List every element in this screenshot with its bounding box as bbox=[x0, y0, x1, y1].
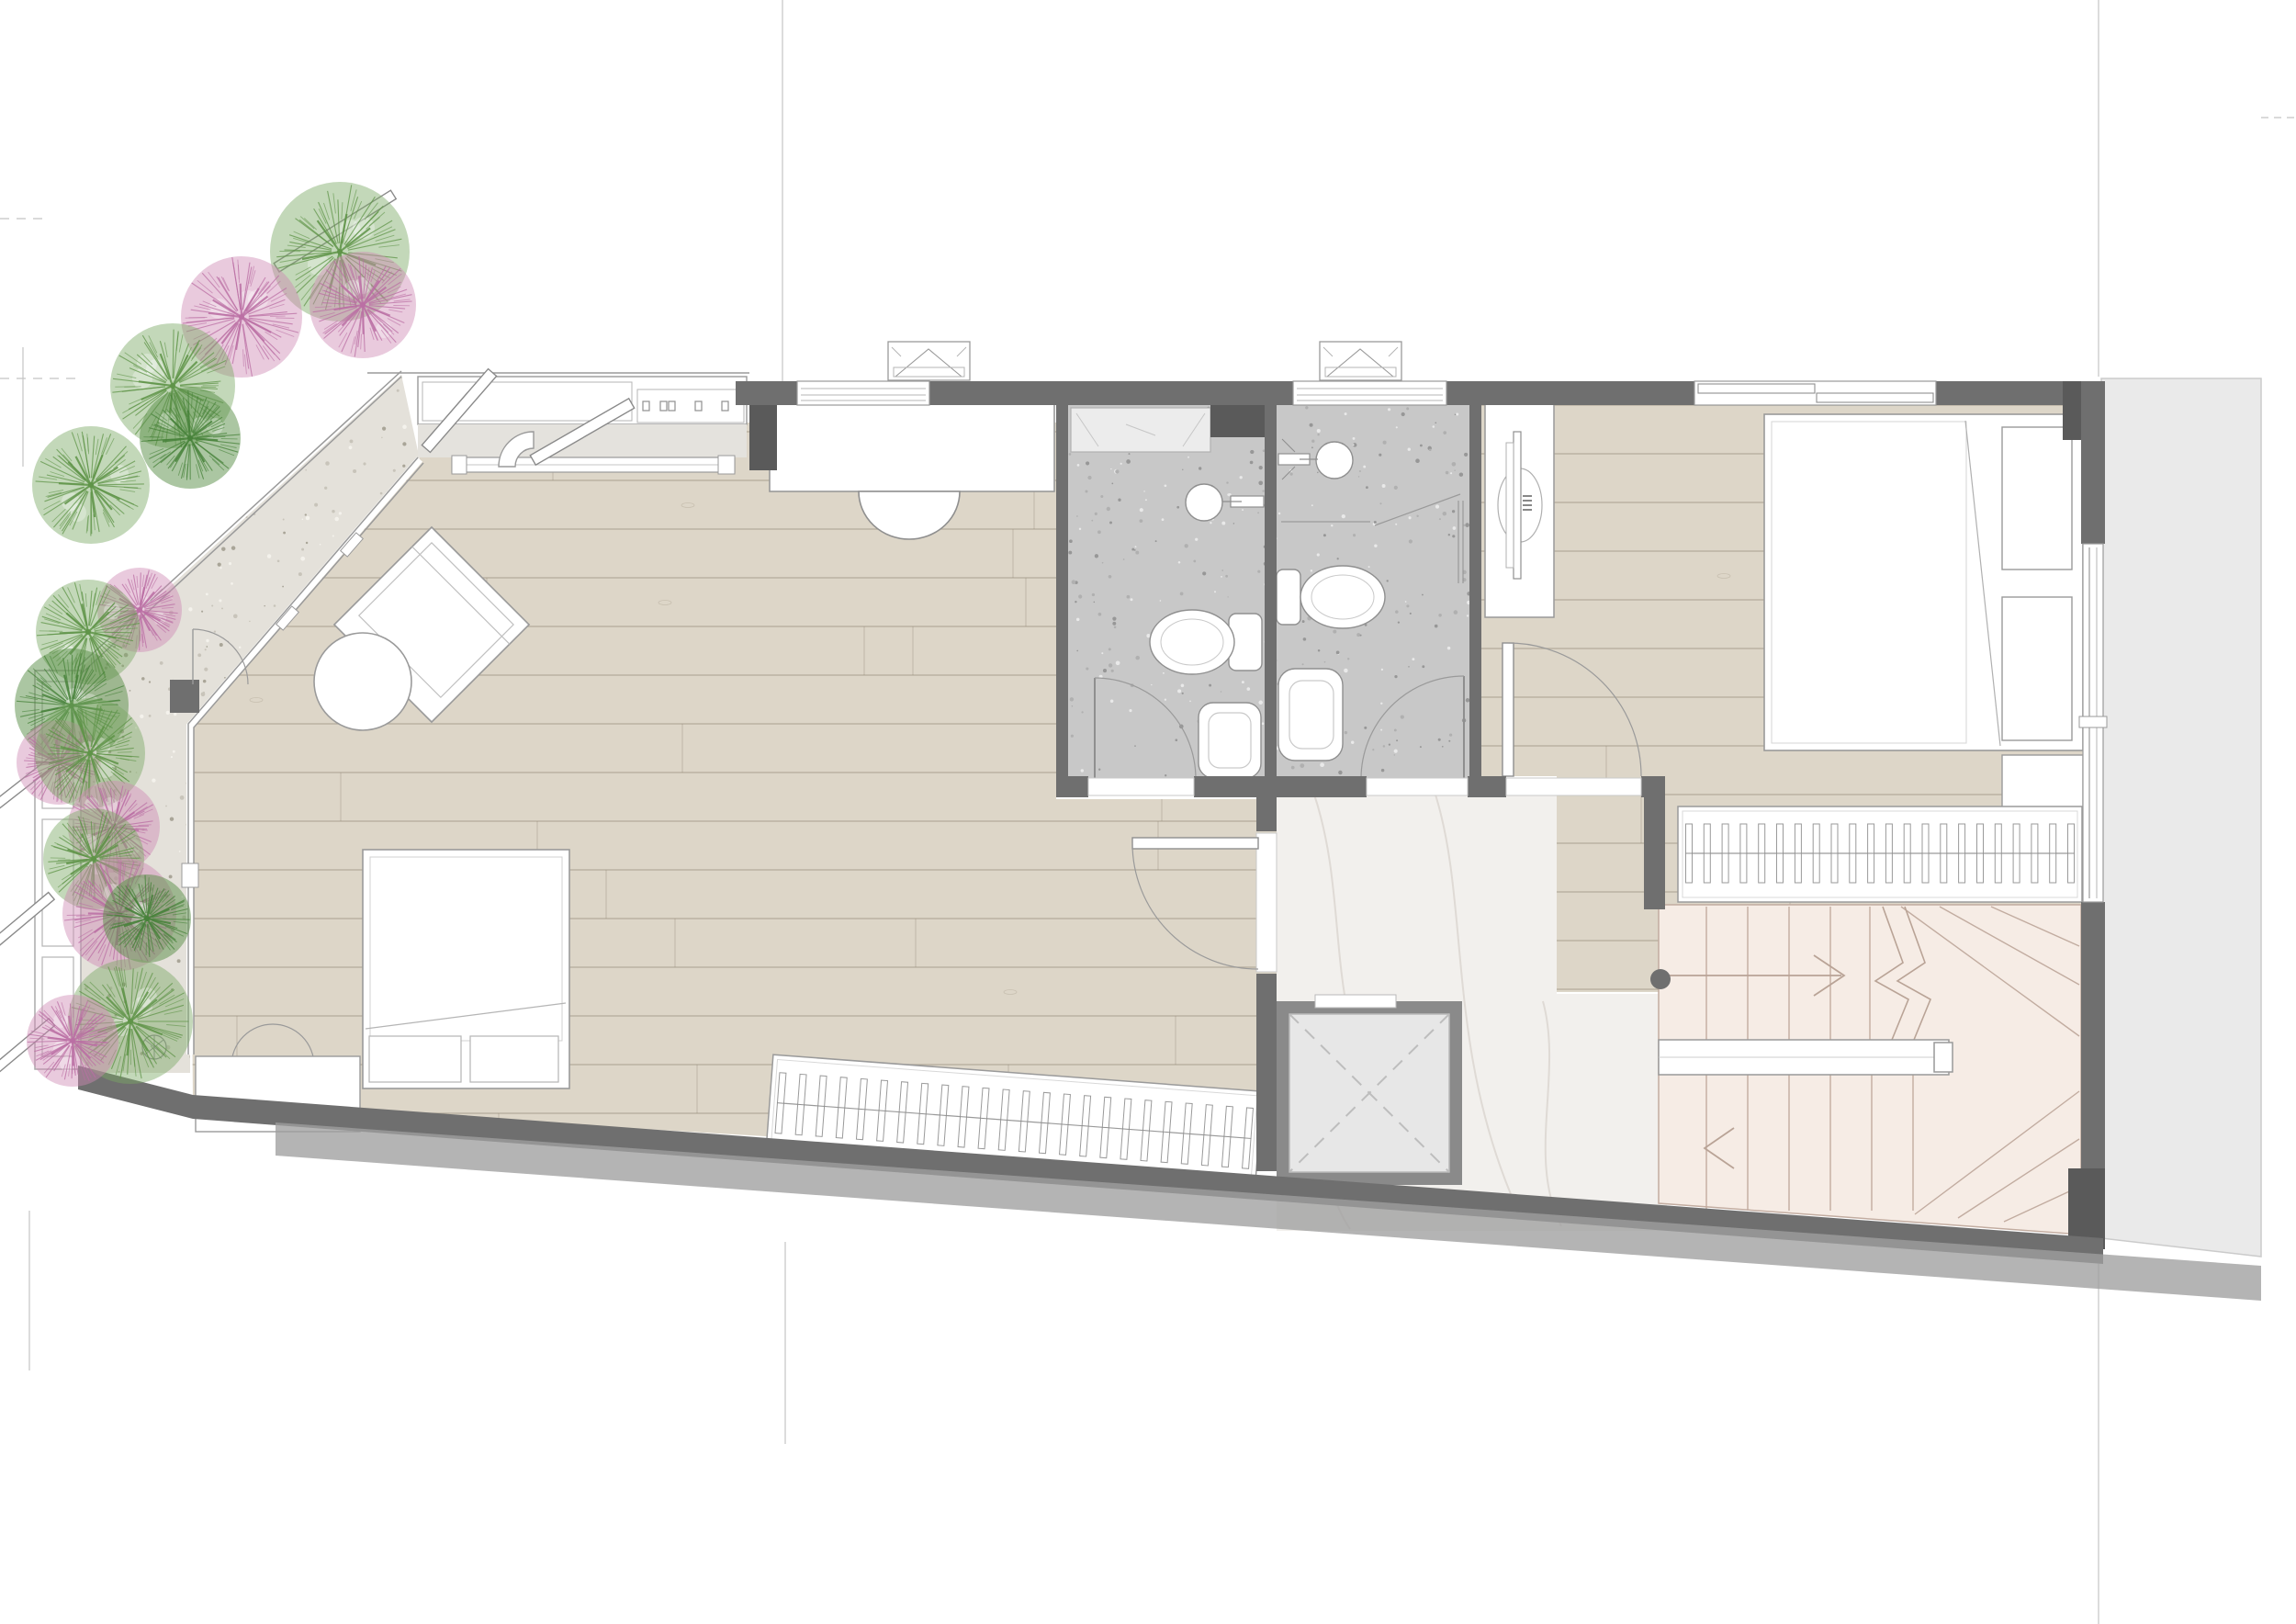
speckle-dot bbox=[298, 405, 302, 409]
tv-panel-icon bbox=[1514, 432, 1521, 579]
speckle-dot bbox=[1464, 524, 1466, 526]
hallway-west-wall bbox=[1256, 797, 1277, 831]
speckle-dot bbox=[186, 491, 189, 494]
bathroom2-east-wall bbox=[1469, 405, 1481, 778]
speckle-dot bbox=[1076, 515, 1078, 517]
speckle-dot bbox=[244, 379, 248, 383]
speckle-dot bbox=[1420, 445, 1423, 447]
speckle-dot bbox=[205, 532, 208, 536]
speckle-dot bbox=[334, 517, 338, 521]
side-table bbox=[314, 633, 411, 730]
glass-mullion bbox=[182, 863, 198, 887]
tree-frond bbox=[91, 492, 92, 535]
hanger-hook bbox=[1020, 1122, 1028, 1122]
speckle-dot bbox=[229, 562, 231, 565]
speckle-dot bbox=[196, 498, 197, 500]
speckle-dot bbox=[235, 385, 239, 389]
hallway-west-wall bbox=[1256, 974, 1277, 1171]
speckle-dot bbox=[402, 442, 406, 445]
hanger-hook bbox=[797, 1104, 805, 1105]
tree-pink-icon bbox=[27, 995, 118, 1087]
speckle-dot bbox=[180, 795, 185, 800]
speckle-dot bbox=[101, 405, 103, 407]
speckle-dot bbox=[1303, 637, 1307, 641]
speckle-dot bbox=[324, 487, 327, 490]
speckle-dot bbox=[1092, 593, 1095, 596]
neighbor-building bbox=[2101, 378, 2261, 1257]
speckle-dot bbox=[1363, 466, 1366, 468]
speckle-dot bbox=[152, 562, 155, 565]
hanger-hook bbox=[879, 1111, 886, 1111]
speckle-dot bbox=[171, 756, 173, 758]
speckle-dot bbox=[1210, 522, 1211, 524]
speckle-dot bbox=[1262, 722, 1265, 725]
speckle-dot bbox=[1446, 471, 1449, 475]
speckle-dot bbox=[1189, 701, 1191, 703]
speckle-dot bbox=[1442, 746, 1444, 748]
speckle-dot bbox=[1388, 408, 1390, 411]
speckle-dot bbox=[1109, 648, 1111, 650]
speckle-dot bbox=[1422, 594, 1424, 596]
speckle-dot bbox=[1382, 484, 1386, 488]
speckle-dot bbox=[1344, 669, 1348, 673]
speckle-dot bbox=[1302, 620, 1305, 623]
speckle-dot bbox=[165, 806, 167, 807]
stair-west-wall bbox=[1644, 797, 1665, 909]
speckle-dot bbox=[242, 400, 246, 404]
speckle-dot bbox=[1109, 575, 1112, 579]
speckle-dot bbox=[231, 582, 233, 585]
speckle-dot bbox=[1097, 530, 1101, 534]
east-wall bbox=[2081, 381, 2105, 544]
speckle-dot bbox=[1422, 665, 1424, 668]
hanger-hook bbox=[858, 1109, 865, 1110]
speckle-dot bbox=[282, 475, 285, 478]
speckle-dot bbox=[402, 424, 407, 429]
speckle-dot bbox=[173, 750, 175, 753]
speckle-dot bbox=[203, 680, 207, 683]
speckle-dot bbox=[1381, 669, 1383, 671]
speckle-dot bbox=[1429, 448, 1432, 451]
speckle-dot bbox=[1331, 524, 1333, 526]
speckle-dot bbox=[1387, 580, 1389, 581]
speckle-dot bbox=[1085, 490, 1087, 492]
speckle-dot bbox=[1257, 570, 1260, 573]
speckle-dot bbox=[1317, 472, 1318, 473]
speckle-dot bbox=[1347, 658, 1349, 660]
speckle-dot bbox=[1345, 731, 1347, 734]
speckle-dot bbox=[1193, 559, 1196, 562]
speckle-dot bbox=[1247, 687, 1251, 691]
speckle-dot bbox=[1140, 519, 1143, 523]
speckle-dot bbox=[1448, 534, 1450, 536]
speckle-dot bbox=[1454, 610, 1458, 615]
speckle-dot bbox=[1466, 698, 1470, 703]
toilet bbox=[1150, 610, 1262, 674]
hanger-hook bbox=[919, 1113, 927, 1114]
shower-niche-wall bbox=[1210, 405, 1265, 437]
speckle-dot bbox=[188, 607, 192, 611]
speckle-dot bbox=[1300, 763, 1304, 768]
speckle-dot bbox=[1311, 570, 1312, 571]
speckle-dot bbox=[1395, 524, 1397, 525]
speckle-dot bbox=[206, 593, 208, 596]
speckle-dot bbox=[90, 386, 92, 388]
window-bathroom2 bbox=[1293, 381, 1446, 405]
speckle-dot bbox=[1398, 621, 1400, 623]
speckle-dot bbox=[129, 690, 131, 692]
speckle-dot bbox=[289, 445, 294, 449]
canopy-highlight bbox=[132, 368, 152, 389]
speckle-dot bbox=[1242, 509, 1244, 511]
speckle-dot bbox=[132, 556, 135, 558]
speckle-dot bbox=[211, 604, 213, 606]
speckle-dot bbox=[301, 548, 304, 551]
speckle-dot bbox=[1116, 660, 1120, 665]
speckle-dot bbox=[1394, 750, 1398, 753]
speckle-dot bbox=[197, 653, 201, 657]
speckle-dot bbox=[167, 547, 172, 551]
speckle-dot bbox=[1401, 412, 1405, 416]
speckle-dot bbox=[160, 661, 163, 665]
speckle-dot bbox=[402, 465, 405, 468]
speckle-dot bbox=[1178, 561, 1181, 564]
speckle-dot bbox=[283, 532, 286, 535]
speckle-dot bbox=[270, 414, 271, 415]
speckle-dot bbox=[1151, 684, 1152, 685]
hanger-hook bbox=[940, 1115, 947, 1116]
hanger-hook bbox=[1183, 1133, 1190, 1134]
speckle-dot bbox=[173, 517, 176, 521]
speckle-dot bbox=[283, 519, 285, 521]
door-threshold bbox=[1088, 778, 1194, 795]
wood-knot bbox=[472, 1185, 485, 1190]
speckle-dot bbox=[235, 398, 237, 400]
speckle-dot bbox=[1372, 749, 1374, 750]
speckle-dot bbox=[1176, 506, 1179, 509]
speckle-dot bbox=[249, 621, 251, 623]
speckle-dot bbox=[298, 425, 300, 427]
speckle-dot bbox=[249, 475, 252, 478]
speckle-dot bbox=[1209, 684, 1211, 687]
speckle-dot bbox=[156, 504, 159, 507]
speckle-dot bbox=[1452, 510, 1455, 513]
speckle-dot bbox=[1069, 539, 1073, 543]
speckle-dot bbox=[1107, 507, 1110, 511]
speckle-dot bbox=[1453, 526, 1457, 530]
tree-trunk-dot bbox=[170, 383, 175, 389]
nightstand bbox=[2002, 427, 2072, 570]
speckle-dot bbox=[1410, 613, 1412, 615]
wardrobe-right bbox=[1678, 806, 2082, 902]
speckle-dot bbox=[1409, 539, 1412, 543]
speckle-dot bbox=[306, 542, 308, 544]
speckle-dot bbox=[1145, 499, 1147, 501]
speckle-dot bbox=[1342, 514, 1345, 518]
speckle-dot bbox=[1450, 472, 1452, 474]
speckle-dot bbox=[1443, 431, 1446, 434]
hanger-hook bbox=[817, 1106, 825, 1107]
speckle-dot bbox=[224, 508, 228, 512]
speckle-dot bbox=[363, 462, 366, 465]
speckle-dot bbox=[297, 412, 300, 415]
speckle-dot bbox=[1336, 651, 1340, 655]
speckle-dot bbox=[1467, 615, 1469, 616]
speckle-dot bbox=[1094, 602, 1096, 603]
speckle-dot bbox=[1318, 649, 1321, 652]
stair-handrail-post bbox=[1934, 1043, 1953, 1072]
speckle-dot bbox=[201, 611, 203, 613]
speckle-dot bbox=[1258, 480, 1263, 485]
speckle-dot bbox=[1383, 441, 1387, 445]
speckle-dot bbox=[314, 503, 318, 507]
speckle-dot bbox=[1227, 596, 1228, 597]
speckle-dot bbox=[1290, 473, 1293, 476]
speckle-dot bbox=[1071, 735, 1074, 738]
speckle-dot bbox=[1454, 469, 1456, 471]
speckle-dot bbox=[1394, 486, 1398, 490]
speckle-dot bbox=[152, 778, 155, 782]
speckle-dot bbox=[1311, 446, 1313, 448]
elevator bbox=[1277, 995, 1462, 1185]
speckle-dot bbox=[170, 817, 174, 820]
hanger-hook bbox=[1122, 1129, 1130, 1130]
slider-cap bbox=[452, 456, 467, 474]
tree-green2-icon bbox=[140, 388, 241, 489]
bidet bbox=[1278, 669, 1343, 761]
speckle-dot bbox=[1118, 499, 1120, 502]
door-threshold bbox=[1506, 778, 1641, 795]
speckle-dot bbox=[149, 539, 151, 541]
speckle-dot bbox=[1165, 484, 1167, 487]
speckle-dot bbox=[1353, 437, 1356, 440]
speckle-dot bbox=[302, 518, 304, 520]
speckle-dot bbox=[1111, 483, 1113, 485]
tree-frond bbox=[67, 915, 85, 916]
speckle-dot bbox=[1180, 592, 1184, 596]
south-wall bbox=[1056, 776, 1088, 797]
speckle-dot bbox=[393, 469, 396, 472]
speckle-dot bbox=[335, 382, 339, 386]
speckle-dot bbox=[1447, 647, 1450, 649]
speckle-dot bbox=[1439, 518, 1441, 520]
speckle-dot bbox=[173, 572, 176, 576]
speckle-dot bbox=[1086, 461, 1089, 465]
top-wall bbox=[1446, 381, 1694, 405]
speckle-dot bbox=[224, 677, 226, 679]
speckle-dot bbox=[1311, 440, 1314, 443]
speckle-dot bbox=[214, 630, 216, 632]
speckle-dot bbox=[1302, 663, 1304, 665]
speckle-dot bbox=[300, 557, 305, 561]
door-threshold bbox=[1367, 778, 1468, 795]
bidet bbox=[1199, 703, 1261, 778]
speckle-dot bbox=[1126, 459, 1131, 464]
speckle-dot bbox=[1452, 462, 1457, 467]
vent-box-icon bbox=[888, 342, 970, 380]
speckle-dot bbox=[339, 512, 342, 514]
speckle-dot bbox=[1412, 658, 1414, 660]
floor-plan-page bbox=[0, 0, 2296, 1624]
speckle-dot bbox=[1438, 739, 1441, 741]
speckle-dot bbox=[1291, 766, 1295, 770]
vanity-desk bbox=[1485, 393, 1554, 617]
speckle-dot bbox=[1408, 448, 1411, 451]
speckle-dot bbox=[1396, 739, 1398, 741]
speckle-dot bbox=[1311, 504, 1313, 506]
desk bbox=[770, 397, 1054, 491]
tree-frond bbox=[150, 437, 163, 438]
speckle-dot bbox=[177, 959, 181, 963]
tree-trunk-dot bbox=[91, 856, 96, 862]
speckle-dot bbox=[1380, 703, 1382, 705]
tree-frond bbox=[201, 387, 216, 388]
speckle-dot bbox=[255, 410, 257, 412]
speckle-dot bbox=[1368, 566, 1370, 568]
speckle-dot bbox=[1195, 538, 1198, 541]
speckle-dot bbox=[1187, 457, 1189, 458]
speckle-dot bbox=[1317, 553, 1320, 556]
speckle-dot bbox=[1465, 523, 1469, 527]
speckle-dot bbox=[274, 604, 276, 607]
speckle-dot bbox=[149, 681, 151, 682]
speckle-dot bbox=[1070, 697, 1074, 701]
speckle-dot bbox=[1317, 429, 1321, 433]
speckle-dot bbox=[253, 458, 256, 462]
speckle-dot bbox=[1401, 716, 1404, 719]
speckle-dot bbox=[1415, 458, 1420, 463]
slider-cap bbox=[718, 456, 735, 474]
hanger-hook bbox=[1082, 1126, 1089, 1127]
speckle-dot bbox=[1081, 769, 1084, 772]
speckle-dot bbox=[1409, 516, 1412, 519]
tree-green2-icon bbox=[103, 874, 191, 963]
speckle-dot bbox=[1181, 684, 1185, 688]
speckle-dot bbox=[380, 492, 383, 495]
speckle-dot bbox=[1069, 453, 1072, 456]
speckle-dot bbox=[305, 469, 307, 471]
speckle-dot bbox=[1435, 422, 1436, 423]
speckle-dot bbox=[1129, 709, 1131, 712]
speckle-dot bbox=[233, 614, 238, 618]
speckle-dot bbox=[332, 535, 334, 536]
speckle-dot bbox=[397, 389, 400, 392]
tree-frond bbox=[276, 318, 294, 319]
speckle-dot bbox=[1240, 476, 1243, 479]
hanger-hook bbox=[1223, 1136, 1231, 1137]
speckle-dot bbox=[1379, 454, 1381, 457]
speckle-dot bbox=[381, 437, 382, 438]
speckle-dot bbox=[1202, 571, 1206, 575]
speckle-dot bbox=[1087, 476, 1091, 479]
speckle-dot bbox=[221, 607, 223, 609]
speckle-dot bbox=[1131, 548, 1134, 551]
speckle-dot bbox=[1078, 594, 1082, 598]
speckle-dot bbox=[1165, 699, 1166, 701]
speckle-dot bbox=[350, 439, 354, 443]
speckle-dot bbox=[1353, 534, 1356, 536]
speckle-dot bbox=[1214, 591, 1216, 592]
speckle-dot bbox=[1123, 558, 1125, 560]
speckle-dot bbox=[1278, 513, 1280, 514]
speckle-dot bbox=[267, 554, 271, 558]
speckle-dot bbox=[305, 513, 307, 515]
speckle-dot bbox=[1182, 693, 1184, 694]
speckle-dot bbox=[179, 851, 181, 852]
speckle-dot bbox=[1221, 522, 1225, 525]
speckle-dot bbox=[1112, 616, 1116, 620]
speckle-dot bbox=[1075, 601, 1076, 603]
speckle-dot bbox=[277, 559, 280, 562]
speckle-dot bbox=[1257, 512, 1259, 513]
speckle-dot bbox=[1366, 486, 1368, 489]
speckle-dot bbox=[298, 572, 302, 576]
speckle-dot bbox=[1221, 691, 1222, 693]
speckle-dot bbox=[1233, 523, 1235, 524]
speckle-dot bbox=[1406, 407, 1409, 410]
speckle-dot bbox=[1129, 453, 1131, 455]
speckle-dot bbox=[1250, 450, 1254, 454]
hanger-hook bbox=[899, 1112, 906, 1113]
tree-trunk-dot bbox=[137, 607, 142, 613]
speckle-dot bbox=[1358, 476, 1360, 478]
hanger-hook bbox=[960, 1117, 967, 1118]
speckle-dot bbox=[169, 566, 173, 570]
hanger-hook bbox=[980, 1118, 987, 1119]
speckle-dot bbox=[245, 516, 247, 518]
speckle-dot bbox=[1109, 522, 1112, 524]
speckle-dot bbox=[1199, 467, 1201, 469]
speckle-dot bbox=[287, 423, 290, 426]
staircase bbox=[1650, 905, 2081, 1235]
speckle-dot bbox=[203, 692, 205, 694]
speckle-dot bbox=[1364, 727, 1367, 729]
hanger-hook bbox=[1041, 1122, 1048, 1123]
speckle-dot bbox=[1095, 513, 1097, 515]
floor-plan-drawing bbox=[0, 0, 2296, 1624]
tree-pink-icon bbox=[310, 252, 416, 358]
hanger-hook bbox=[838, 1108, 845, 1109]
speckle-dot bbox=[1380, 729, 1382, 731]
speckle-dot bbox=[1131, 598, 1133, 601]
speckle-dot bbox=[1389, 743, 1390, 745]
south-wall bbox=[1468, 776, 1506, 797]
speckle-dot bbox=[1242, 681, 1244, 683]
speckle-dot bbox=[158, 553, 161, 556]
speckle-dot bbox=[199, 536, 203, 540]
top-wall bbox=[929, 381, 1293, 405]
speckle-dot bbox=[1351, 740, 1354, 743]
speckle-dot bbox=[1263, 490, 1265, 491]
speckle-dot bbox=[1086, 667, 1088, 670]
speckle-dot bbox=[185, 548, 186, 550]
speckle-dot bbox=[1135, 546, 1137, 547]
speckle-dot bbox=[1143, 491, 1145, 492]
tree-trunk-dot bbox=[337, 249, 343, 254]
speckle-dot bbox=[306, 516, 310, 521]
tree-frond bbox=[72, 655, 73, 699]
speckle-dot bbox=[1259, 466, 1263, 469]
hanger-hook bbox=[1244, 1138, 1252, 1139]
speckle-dot bbox=[1396, 426, 1398, 428]
speckle-dot bbox=[1379, 502, 1381, 504]
speckle-dot bbox=[274, 424, 276, 426]
speckle-dot bbox=[1420, 746, 1422, 748]
speckle-dot bbox=[1162, 518, 1165, 521]
speckle-dot bbox=[1258, 701, 1263, 705]
speckle-dot bbox=[1079, 528, 1081, 530]
speckle-dot bbox=[1112, 622, 1116, 626]
